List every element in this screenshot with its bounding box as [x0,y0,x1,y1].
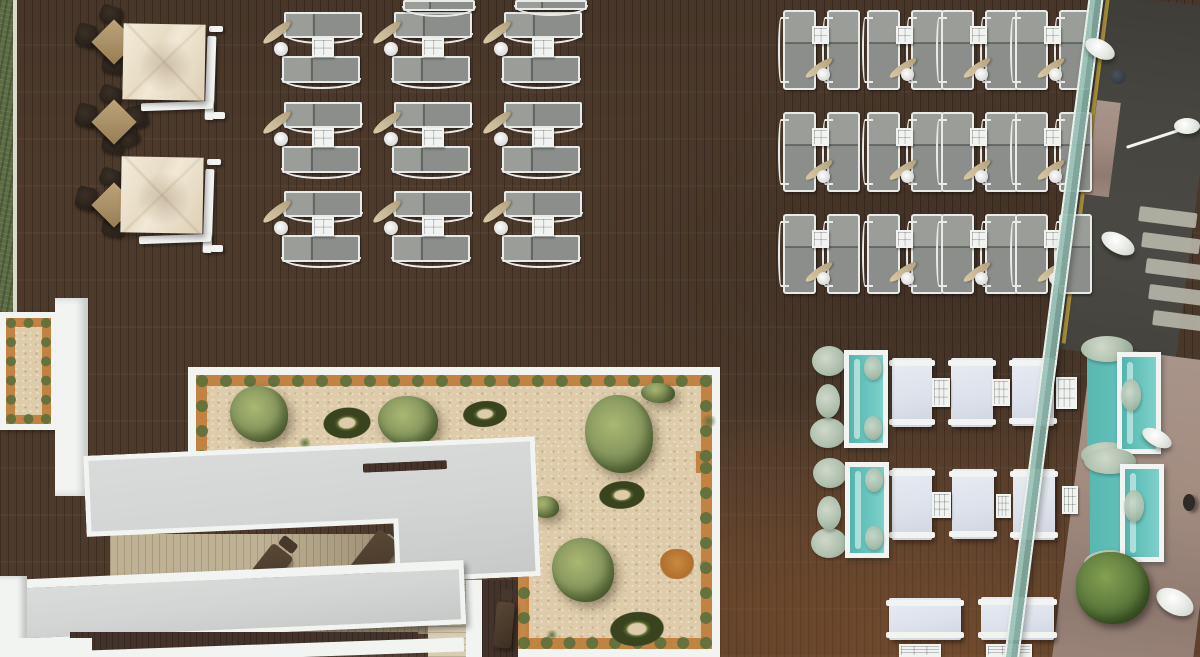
sun-lounger [282,56,360,83]
side-table [422,128,444,147]
cabana-post [213,112,225,119]
side-table [970,128,987,146]
side-table [896,128,913,146]
sun-lounger [282,146,360,173]
sun-lounger [504,191,582,217]
daybed-curtain [864,356,882,380]
lounger-pair [867,10,940,86]
pedestrian [1183,494,1195,511]
sun-lounger [1015,10,1048,90]
massage-table [952,469,994,539]
side-table [532,38,554,57]
umbrella-base [384,221,398,235]
umbrella-base [817,68,830,81]
olive-tree [230,386,288,442]
umbrella-base [384,42,398,56]
cabana-post [209,26,223,32]
sun-lounger [941,214,974,294]
daybed-curtain [817,496,841,530]
lounger-pair [941,112,1014,188]
daybed-curtain [816,384,840,418]
curb [13,0,17,315]
sun-lounger [392,146,470,173]
daybed-curtain [865,526,883,550]
lounger-pair-group [272,102,362,172]
lounger-pair-group [272,12,362,82]
lattice-table [992,379,1010,406]
railing-knob [1110,68,1126,84]
groundcover-patch [660,549,694,579]
umbrella-base [274,132,288,146]
sun-lounger [502,56,580,83]
daybed-curtain [812,346,846,376]
massage-table [892,468,932,540]
sun-lounger-partial [515,0,587,10]
massage-table [892,358,932,427]
side-table [312,128,334,147]
lattice-table [899,644,941,657]
lounger-pair-group [382,12,472,82]
side-table [312,217,334,236]
lounger-pair-group [382,102,472,172]
slat-panel-edge [466,580,482,657]
lounger-pair-group [492,102,582,172]
umbrella-base [901,272,914,285]
sun-lounger [502,235,580,262]
umbrella-base [494,221,508,235]
lounger-pair [783,214,856,290]
side-table [970,230,987,248]
lounger-pair [1015,10,1088,86]
umbrella-base [975,68,988,81]
side-table [896,26,913,44]
lattice-table [1062,486,1078,514]
sun-lounger [282,235,360,262]
sun-lounger [504,12,582,38]
daybed-curtain [864,416,882,440]
cabana-canvas-roof [122,23,205,100]
umbrella-base [494,132,508,146]
lattice-table [932,378,950,407]
rooftop-aerial-photo [0,0,1200,657]
side-table [422,217,444,236]
lounger-pair-group [492,12,582,82]
planter-dots [6,318,51,424]
side-table [812,230,829,248]
sun-lounger [867,214,900,294]
sun-lounger [284,12,362,38]
lattice-table [996,494,1011,518]
sun-lounger [867,112,900,192]
olive-tree [378,396,438,446]
umbrella-base [975,272,988,285]
umbrella-base [975,170,988,183]
side-table [970,26,987,44]
lounger-pair [783,112,856,188]
side-table [532,128,554,147]
side-table [312,38,334,57]
grass-tuft [698,560,710,570]
daybed-curtain [865,468,883,492]
teal-daybed [1083,344,1161,462]
lounger-pair-group [382,191,472,261]
sun-lounger [941,10,974,90]
sun-lounger [941,112,974,192]
sun-lounger [504,102,582,128]
sun-lounger [394,102,472,128]
sun-lounger [1015,112,1048,192]
sun-lounger [867,10,900,90]
lounger-pair [941,214,1014,290]
umbrella-base [901,68,914,81]
grass-tuft [545,630,559,640]
lounger-pair [867,214,940,290]
daybed-table [889,598,961,640]
daybed-curtain [811,528,847,558]
olive-tree [585,395,653,473]
sun-lounger [394,191,472,217]
cabana-beam [139,234,211,245]
lounger-pair [941,10,1014,86]
cabana-canvas-roof [120,156,203,233]
sun-lounger [827,214,860,294]
corner-slab [0,638,92,657]
sun-lounger [502,146,580,173]
sun-lounger [284,102,362,128]
sun-lounger [783,112,816,192]
grass-strip [0,0,13,315]
lounger-pair-group [272,191,362,261]
side-table [896,230,913,248]
teal-daybed [818,350,888,448]
sun-lounger [1015,214,1048,294]
cabana-post [211,245,223,252]
umbrella-base [1049,170,1062,183]
side-table [812,128,829,146]
olive-tree [552,538,614,602]
potted-tree-foliage [1076,552,1150,624]
white-cabana [121,157,233,249]
sun-lounger [284,191,362,217]
sun-lounger-partial [403,0,475,11]
umbrella-base [817,170,830,183]
umbrella-base [494,42,508,56]
lattice-table [932,492,951,518]
umbrella-base [274,42,288,56]
daybed-curtain [813,458,847,488]
sun-lounger [783,10,816,90]
sun-lounger [392,235,470,262]
grass-tuft [700,415,718,427]
umbrella-base [1049,68,1062,81]
umbrella-base [274,221,288,235]
sun-lounger [827,112,860,192]
side-table [1044,26,1061,44]
sun-lounger [392,56,470,83]
daybed-curtain [1124,490,1144,522]
lounger-pair-group [492,191,582,261]
sun-lounger [827,10,860,90]
sun-lounger [783,214,816,294]
street-lamp [1174,118,1200,134]
planter-box [0,312,57,430]
side-table [1044,128,1061,146]
umbrella-base [817,272,830,285]
massage-table [951,358,993,427]
olive-tree [641,383,675,403]
cabana-beam [141,101,213,112]
teal-daybed [819,462,889,558]
umbrella-base [384,132,398,146]
side-table [422,38,444,57]
umbrella-base [901,170,914,183]
lounger-pair [783,10,856,86]
side-table [812,26,829,44]
white-cabana [123,24,235,116]
lounger-pair [867,112,940,188]
lattice-table [1056,377,1077,409]
cabana-post [207,159,221,165]
daybed-curtain [810,418,846,448]
side-table [532,217,554,236]
